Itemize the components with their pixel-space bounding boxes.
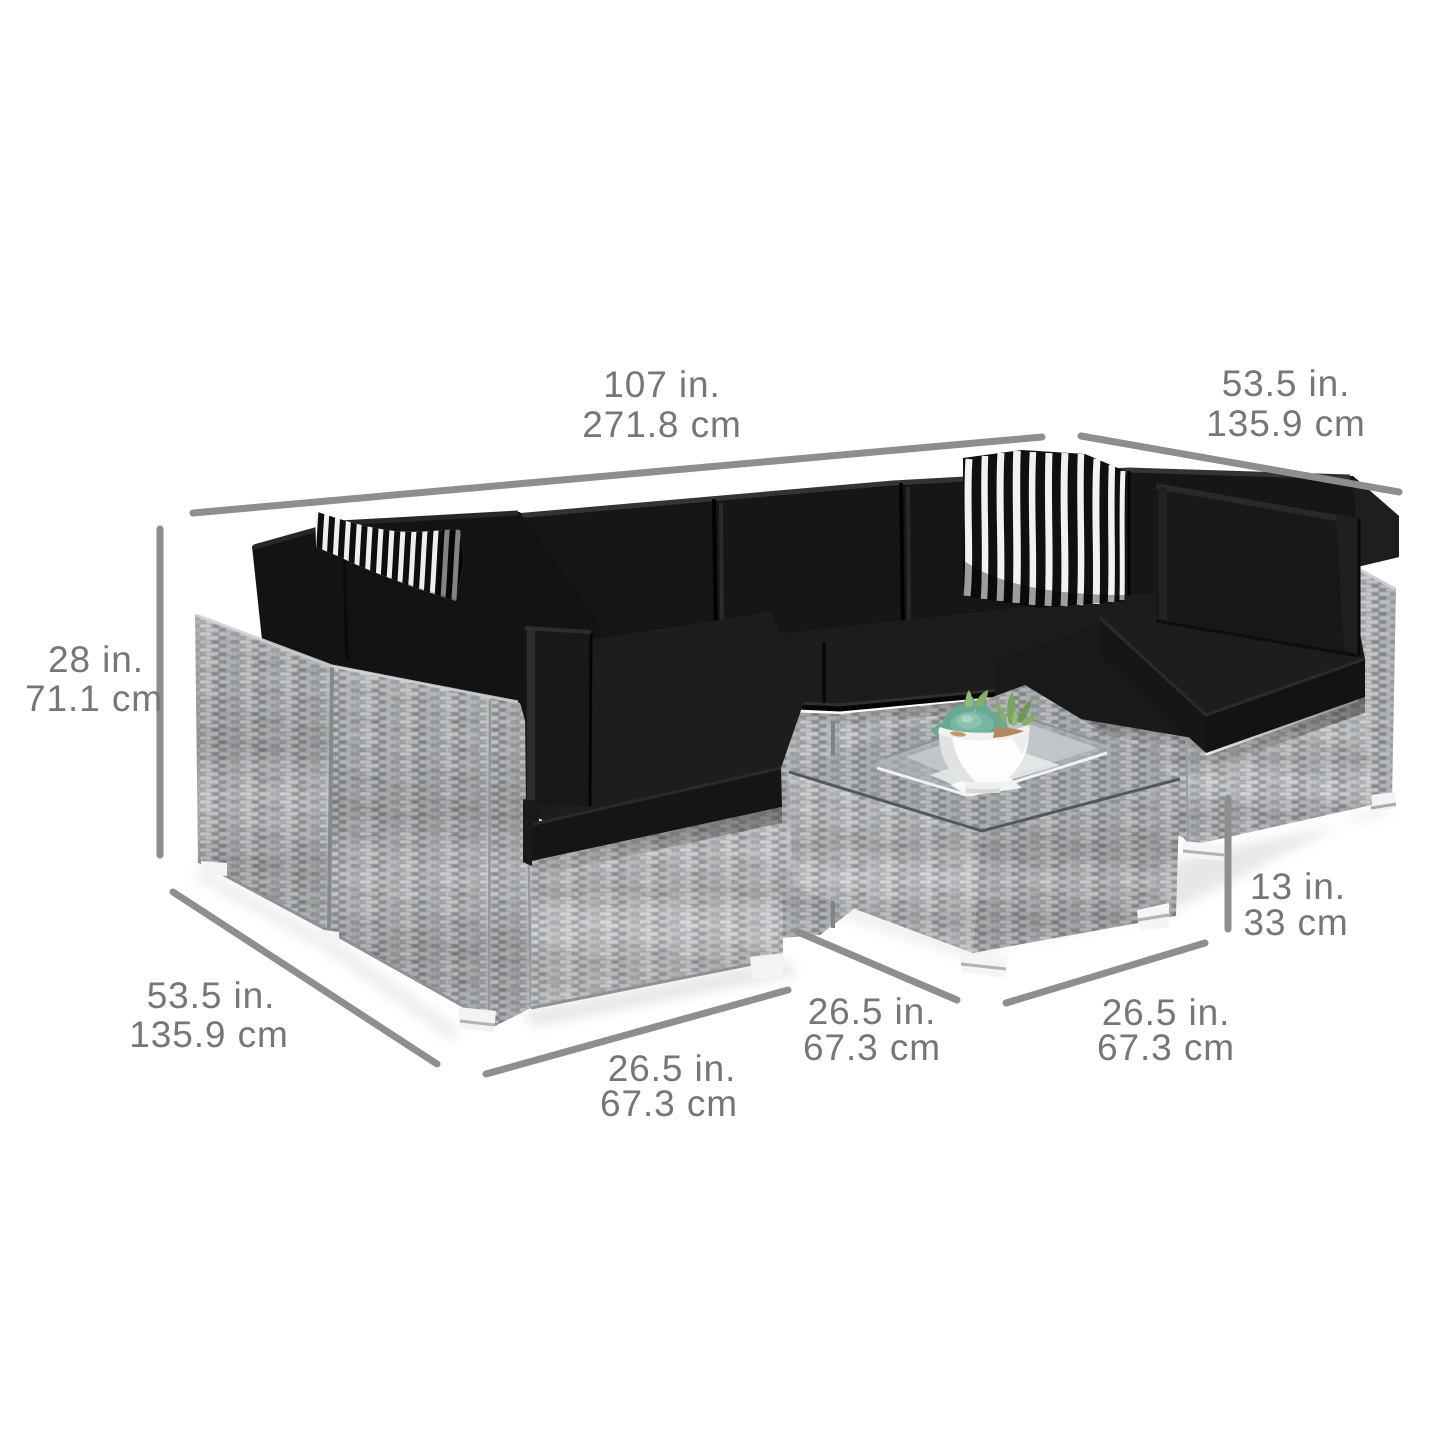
svg-text:53.5 in.: 53.5 in. [147,975,276,1016]
svg-text:67.3 cm: 67.3 cm [1097,1027,1235,1068]
svg-text:13 in.: 13 in. [1250,866,1346,907]
svg-text:53.5 in.: 53.5 in. [1222,363,1351,404]
svg-text:71.1 cm: 71.1 cm [25,678,163,719]
svg-text:107 in.: 107 in. [603,364,720,405]
svg-text:135.9 cm: 135.9 cm [1206,403,1365,444]
svg-text:26.5 in.: 26.5 in. [808,991,937,1032]
svg-text:67.3 cm: 67.3 cm [600,1083,738,1124]
svg-text:33 cm: 33 cm [1243,902,1348,943]
svg-text:271.8 cm: 271.8 cm [582,404,741,445]
svg-text:67.3 cm: 67.3 cm [803,1027,941,1068]
svg-text:28 in.: 28 in. [48,639,144,680]
svg-text:135.9 cm: 135.9 cm [129,1014,288,1055]
